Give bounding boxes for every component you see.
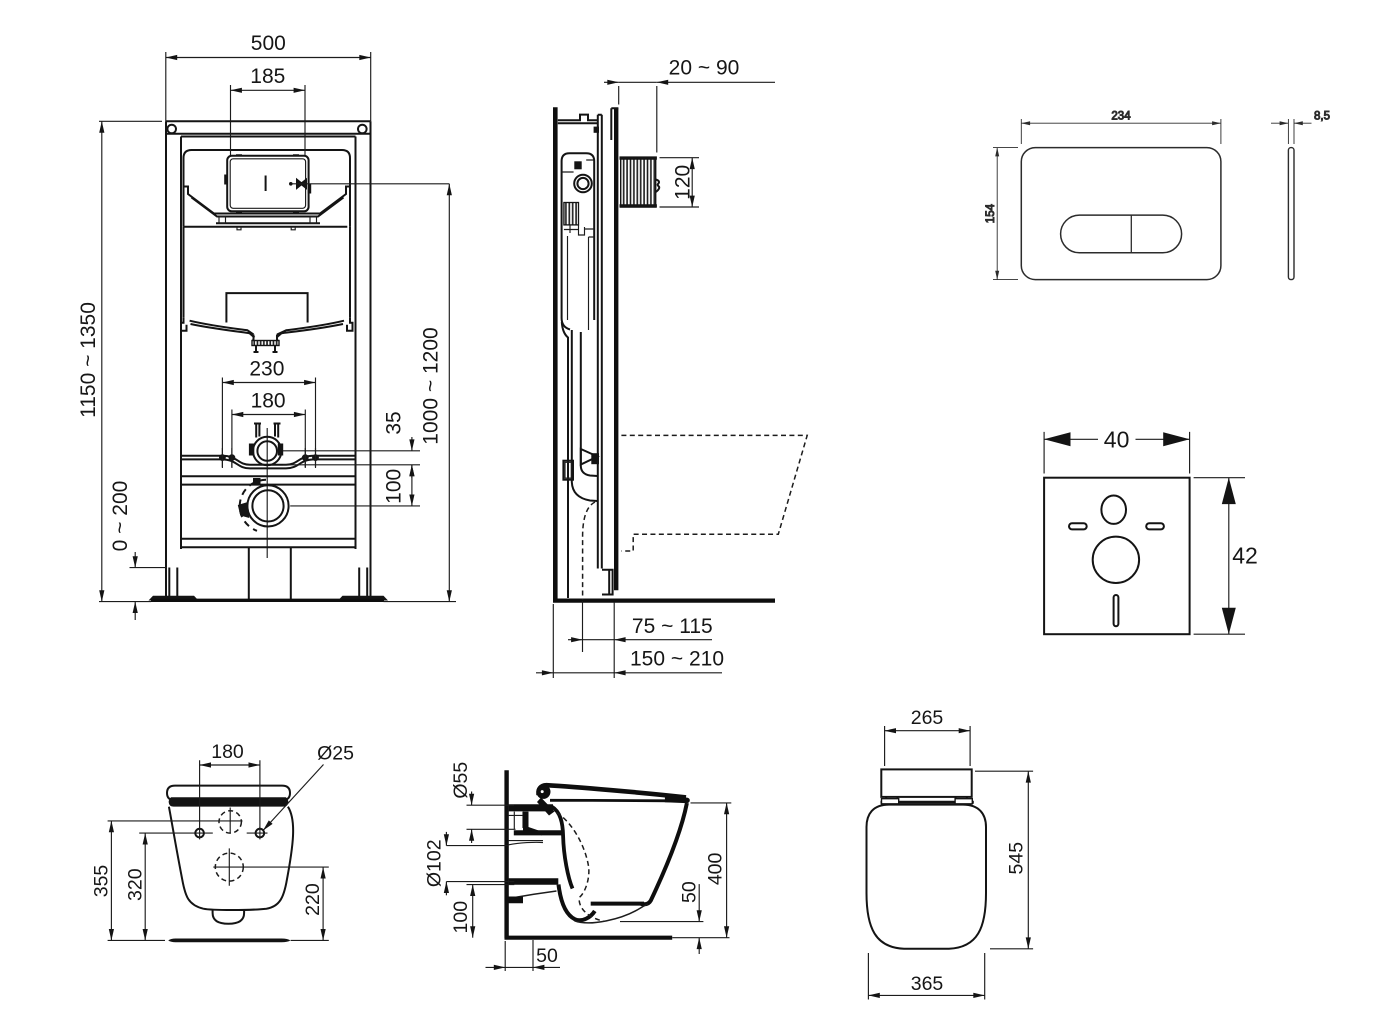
svg-text:50: 50 — [679, 881, 701, 903]
svg-text:8,5: 8,5 — [1314, 111, 1330, 123]
svg-text:154: 154 — [985, 203, 997, 223]
svg-text:230: 230 — [249, 358, 284, 381]
svg-text:120: 120 — [672, 165, 695, 200]
svg-text:355: 355 — [91, 865, 113, 898]
svg-text:40: 40 — [1104, 427, 1130, 453]
svg-text:320: 320 — [125, 868, 147, 901]
svg-text:100: 100 — [450, 901, 472, 934]
svg-text:400: 400 — [705, 852, 727, 885]
svg-text:234: 234 — [1111, 111, 1131, 123]
svg-text:Ø25: Ø25 — [317, 743, 354, 765]
svg-text:365: 365 — [911, 973, 944, 995]
svg-text:1000 ~ 1200: 1000 ~ 1200 — [419, 327, 442, 444]
svg-text:1150 ~ 1350: 1150 ~ 1350 — [77, 302, 100, 418]
svg-text:180: 180 — [251, 390, 286, 413]
svg-text:75 ~ 115: 75 ~ 115 — [632, 615, 713, 638]
svg-text:500: 500 — [251, 32, 286, 55]
svg-text:20 ~ 90: 20 ~ 90 — [669, 57, 740, 80]
svg-text:0 ~ 200: 0 ~ 200 — [109, 481, 132, 552]
svg-text:100: 100 — [383, 469, 406, 504]
svg-text:185: 185 — [250, 65, 285, 88]
svg-text:35: 35 — [383, 411, 406, 434]
svg-text:42: 42 — [1232, 542, 1258, 568]
svg-text:545: 545 — [1006, 842, 1028, 875]
svg-text:Ø102: Ø102 — [424, 839, 446, 887]
svg-text:220: 220 — [302, 883, 324, 916]
svg-text:Ø55: Ø55 — [450, 762, 472, 799]
svg-text:50: 50 — [536, 945, 558, 967]
svg-text:180: 180 — [211, 741, 244, 763]
svg-text:150 ~ 210: 150 ~ 210 — [630, 648, 724, 671]
svg-text:265: 265 — [911, 707, 944, 729]
